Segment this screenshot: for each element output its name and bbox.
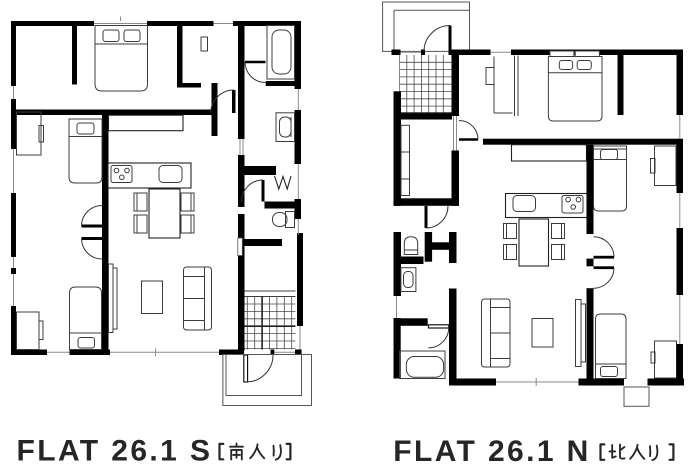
svg-text:FLAT 26.1 S: FLAT 26.1 S	[17, 435, 211, 468]
svg-text:FLAT 26.1 N: FLAT 26.1 N	[393, 435, 588, 468]
